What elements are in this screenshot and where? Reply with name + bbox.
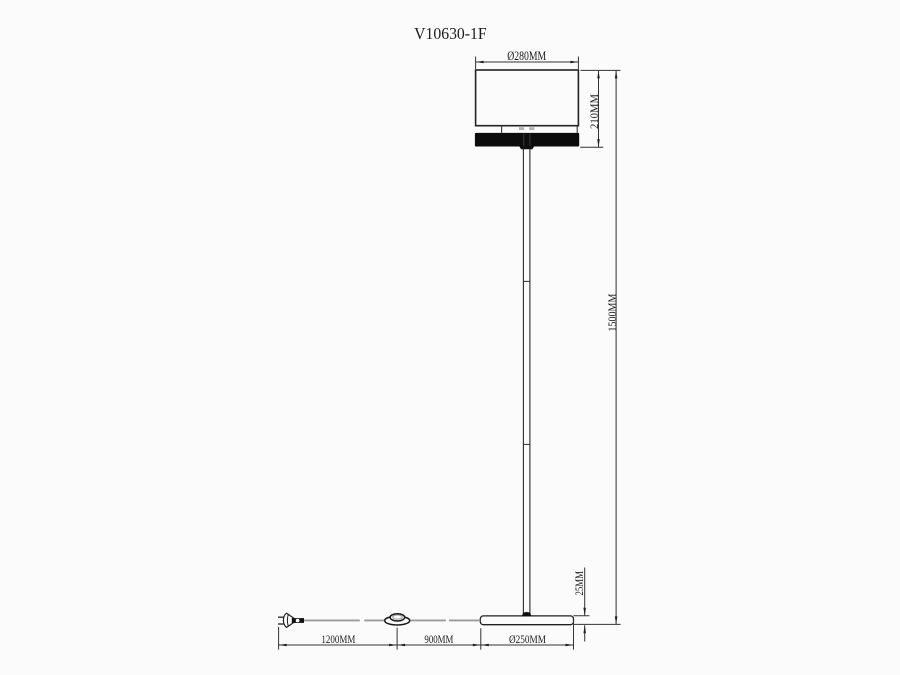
svg-text:Ø250MM: Ø250MM [509, 634, 546, 646]
svg-text:V10630-1F: V10630-1F [414, 24, 487, 43]
svg-text:900MM: 900MM [424, 634, 453, 646]
svg-text:Ø280MM: Ø280MM [507, 49, 546, 63]
svg-text:25MM: 25MM [572, 571, 586, 596]
svg-text:210MM: 210MM [589, 94, 601, 129]
svg-text:1500MM: 1500MM [607, 294, 619, 332]
svg-text:1200MM: 1200MM [321, 634, 355, 646]
